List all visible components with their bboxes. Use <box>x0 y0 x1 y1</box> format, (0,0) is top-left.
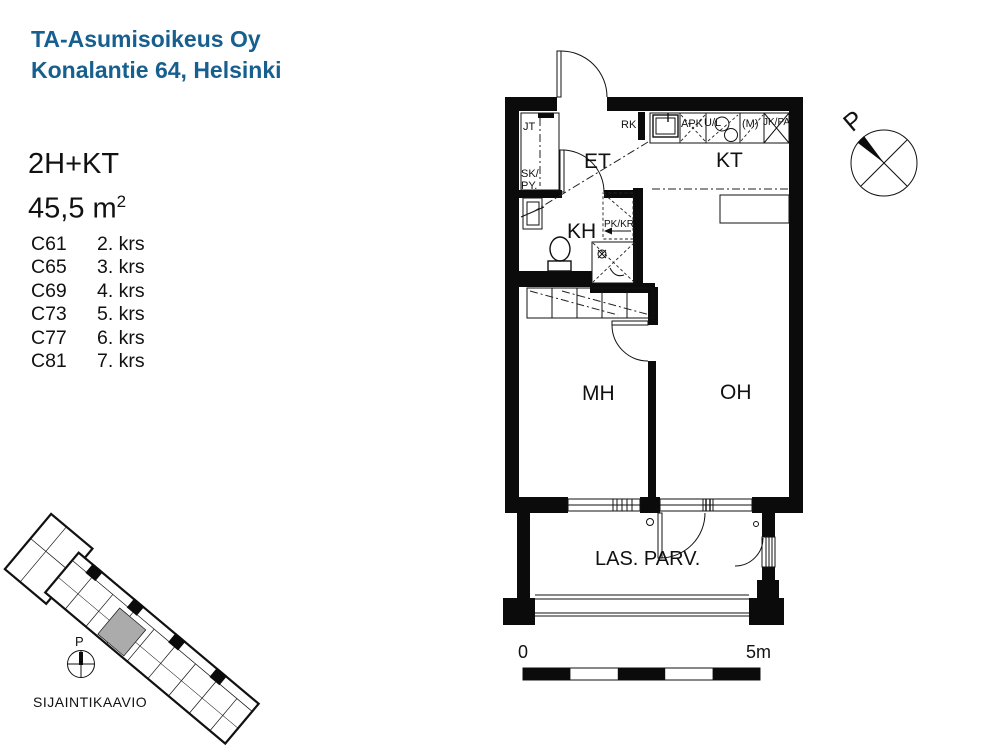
label-py: PY. <box>521 180 537 192</box>
label-ul: U/L <box>704 117 721 129</box>
label-pkkr: PK/KR <box>604 219 634 230</box>
entry-door <box>557 51 607 97</box>
label-jt: JT <box>523 121 536 133</box>
compass-north-label: P <box>838 105 869 137</box>
shower-area <box>592 242 635 283</box>
washbasin-icon <box>521 198 544 229</box>
room-label-et: ET <box>584 150 611 173</box>
label-m: (M) <box>742 118 759 130</box>
site-plan-caption: SIJAINTIKAAVIO <box>33 694 147 710</box>
washer-dryer-cabinet <box>603 193 633 239</box>
site-compass-icon: P <box>67 634 95 678</box>
ceiling-light-icon <box>647 519 654 526</box>
label-jkpa: JK/PA <box>763 117 790 128</box>
room-label-kh: KH <box>567 220 596 243</box>
sink-icon <box>653 113 678 137</box>
label-apk: APK <box>681 118 704 130</box>
floor-plan: ET KT KH MH OH LAS. PARV. JT SK/ PY. RK … <box>0 0 1000 750</box>
balcony-partition-door <box>735 537 775 567</box>
compass-icon: P <box>838 105 917 196</box>
oh-window <box>660 497 752 513</box>
scale-bar: 0 5m <box>518 642 771 680</box>
room-label-kt: KT <box>716 149 743 172</box>
scale-zero-label: 0 <box>518 642 528 662</box>
site-plan: P SIJAINTIKAAVIO <box>5 514 267 750</box>
site-compass-north-label: P <box>75 634 84 649</box>
ceiling-light-icon <box>754 522 759 527</box>
scale-five-label: 5m <box>746 642 771 662</box>
room-label-mh: MH <box>582 382 615 405</box>
mh-window <box>568 497 640 513</box>
kitchen-table <box>720 195 789 223</box>
room-label-balcony: LAS. PARV. <box>595 548 700 570</box>
bedroom-door <box>612 321 648 361</box>
room-label-oh: OH <box>720 381 752 404</box>
label-sk: SK/ <box>521 168 540 180</box>
walls <box>505 97 803 513</box>
label-rk: RK <box>621 119 637 131</box>
balcony-glazing <box>535 595 749 616</box>
